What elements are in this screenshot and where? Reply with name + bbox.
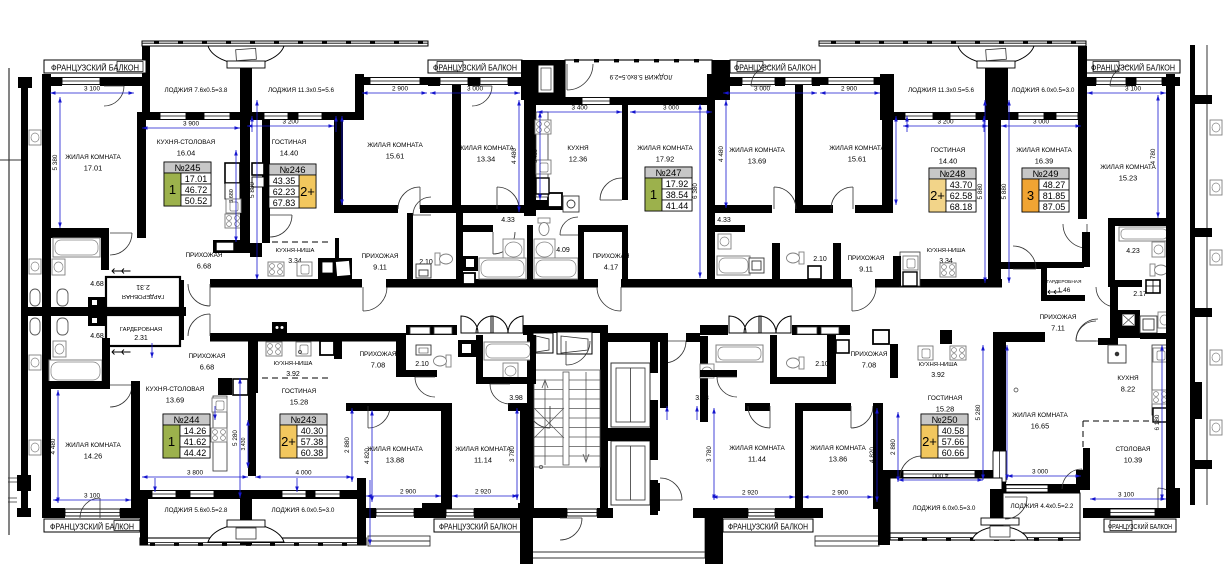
svg-text:ПРИХОЖАЯ: ПРИХОЖАЯ — [1039, 314, 1076, 321]
svg-text:11.44: 11.44 — [748, 455, 766, 464]
svg-text:17.01: 17.01 — [185, 174, 208, 184]
svg-text:ЖИЛАЯ КОМНАТА: ЖИЛАЯ КОМНАТА — [1100, 164, 1156, 171]
svg-text:15.28: 15.28 — [290, 398, 309, 407]
svg-text:2+: 2+ — [930, 188, 945, 203]
svg-text:60.66: 60.66 — [942, 448, 965, 458]
svg-text:14.40: 14.40 — [280, 149, 299, 158]
svg-text:ЖИЛАЯ КОМНАТА: ЖИЛАЯ КОМНАТА — [65, 154, 121, 161]
svg-text:ГОСТИНАЯ: ГОСТИНАЯ — [282, 388, 317, 395]
svg-text:67.83: 67.83 — [273, 198, 296, 208]
svg-text:8.22: 8.22 — [1121, 385, 1135, 394]
svg-text:4.23: 4.23 — [1126, 248, 1140, 255]
svg-text:6 180: 6 180 — [1154, 414, 1161, 430]
svg-text:17.92: 17.92 — [666, 179, 689, 189]
svg-text:3.98: 3.98 — [695, 395, 709, 402]
svg-text:2+: 2+ — [281, 434, 296, 449]
svg-text:КУХНЯ-НИША: КУХНЯ-НИША — [927, 248, 966, 254]
svg-text:62.23: 62.23 — [273, 187, 296, 197]
svg-text:ЛОДЖИЯ 6.0х0.5=3.0: ЛОДЖИЯ 6.0х0.5=3.0 — [1012, 87, 1075, 94]
svg-text:ЖИЛАЯ КОМНАТА: ЖИЛАЯ КОМНАТА — [1016, 147, 1072, 154]
svg-text:ФРАНЦУЗСКИЙ БАЛКОН: ФРАНЦУЗСКИЙ БАЛКОН — [1108, 522, 1172, 531]
svg-text:ЖИЛАЯ КОМНАТА: ЖИЛАЯ КОМНАТА — [367, 142, 423, 149]
svg-text:№250: №250 — [931, 415, 957, 426]
svg-text:ПРИХОЖАЯ: ПРИХОЖАЯ — [850, 351, 887, 358]
svg-text:4.17: 4.17 — [604, 263, 618, 272]
svg-text:3 000: 3 000 — [467, 85, 483, 92]
svg-text:43.70: 43.70 — [950, 180, 973, 190]
svg-text:5 380: 5 380 — [52, 154, 59, 170]
svg-text:4.68: 4.68 — [90, 333, 104, 340]
svg-text:5 280: 5 280 — [975, 404, 982, 420]
svg-text:5 880: 5 880 — [977, 183, 984, 199]
svg-text:9.11: 9.11 — [859, 265, 873, 274]
svg-text:3 900: 3 900 — [183, 120, 199, 127]
svg-text:6 380: 6 380 — [692, 183, 699, 199]
svg-text:5 880: 5 880 — [1001, 183, 1008, 199]
svg-text:1: 1 — [169, 182, 176, 197]
svg-text:48.27: 48.27 — [1043, 180, 1066, 190]
svg-text:3.98: 3.98 — [509, 395, 523, 402]
svg-text:КУХНЯ: КУХНЯ — [567, 145, 589, 152]
svg-text:57.38: 57.38 — [301, 437, 324, 447]
svg-text:10.39: 10.39 — [1124, 456, 1143, 465]
svg-text:3 280: 3 280 — [888, 152, 895, 168]
svg-text:ЛОДЖИЯ 4.4х0.5=2.2: ЛОДЖИЯ 4.4х0.5=2.2 — [1011, 503, 1074, 510]
svg-text:2 880: 2 880 — [890, 439, 897, 455]
svg-text:ЛОДЖИЯ 5.6х0.5=2.8: ЛОДЖИЯ 5.6х0.5=2.8 — [165, 507, 228, 514]
svg-text:№249: №249 — [1032, 169, 1058, 180]
svg-text:3 400: 3 400 — [572, 104, 588, 111]
svg-text:2+: 2+ — [300, 184, 315, 199]
svg-text:7.08: 7.08 — [862, 361, 876, 370]
svg-text:68.18: 68.18 — [950, 202, 973, 212]
svg-text:7.11: 7.11 — [1051, 324, 1065, 333]
svg-text:3 100: 3 100 — [1125, 85, 1141, 92]
svg-text:ГОСТИНАЯ: ГОСТИНАЯ — [272, 139, 307, 146]
svg-text:60.38: 60.38 — [301, 448, 324, 458]
svg-text:ЖИЛАЯ КОМНАТА: ЖИЛАЯ КОМНАТА — [729, 445, 785, 452]
svg-text:57.66: 57.66 — [942, 437, 965, 447]
svg-text:40.58: 40.58 — [942, 426, 965, 436]
svg-text:38.54: 38.54 — [666, 190, 689, 200]
svg-text:ЖИЛАЯ КОМНАТА: ЖИЛАЯ КОМНАТА — [637, 145, 693, 152]
svg-text:№248: №248 — [939, 169, 965, 180]
svg-text:ПРИХОЖАЯ: ПРИХОЖАЯ — [185, 252, 222, 259]
svg-text:3 000: 3 000 — [1032, 468, 1048, 475]
svg-text:ЖИЛАЯ КОМНАТА: ЖИЛАЯ КОМНАТА — [455, 446, 511, 453]
svg-text:6.68: 6.68 — [197, 262, 211, 271]
svg-text:13.34: 13.34 — [477, 155, 496, 164]
svg-text:16.39: 16.39 — [1035, 157, 1054, 166]
svg-text:КУХНЯ-НИША: КУХНЯ-НИША — [274, 361, 313, 367]
svg-text:3.680: 3.680 — [229, 189, 235, 203]
svg-text:7.08: 7.08 — [371, 361, 385, 370]
svg-text:3 000: 3 000 — [1033, 118, 1049, 125]
svg-text:ПРИХОЖАЯ: ПРИХОЖАЯ — [359, 351, 396, 358]
svg-text:ФРАНЦУЗСКИЙ БАЛКОН: ФРАНЦУЗСКИЙ БАЛКОН — [439, 523, 517, 532]
svg-text:ЖИЛАЯ КОМНАТА: ЖИЛАЯ КОМНАТА — [1012, 412, 1068, 419]
svg-text:3 280: 3 280 — [334, 152, 341, 168]
svg-text:17.92: 17.92 — [656, 155, 675, 164]
svg-text:2 920: 2 920 — [742, 489, 758, 496]
svg-text:44.42: 44.42 — [184, 448, 207, 458]
svg-text:ПРИХОЖАЯ: ПРИХОЖАЯ — [592, 253, 629, 260]
svg-text:14.26: 14.26 — [184, 426, 207, 436]
svg-text:2.10: 2.10 — [815, 361, 829, 368]
svg-text:16.65: 16.65 — [1031, 422, 1050, 431]
svg-text:4.33: 4.33 — [717, 217, 731, 224]
svg-text:13.69: 13.69 — [166, 396, 185, 405]
svg-text:15.61: 15.61 — [848, 155, 867, 164]
svg-text:5 280: 5 280 — [999, 404, 1006, 420]
svg-text:4 000: 4 000 — [932, 471, 948, 478]
svg-text:17.01: 17.01 — [84, 164, 103, 173]
svg-text:4 000: 4 000 — [296, 469, 312, 476]
svg-text:2 900: 2 900 — [392, 85, 408, 92]
svg-text:3 780: 3 780 — [706, 446, 713, 462]
svg-text:№244: №244 — [173, 415, 199, 426]
svg-text:ЛОДЖИЯ 7.6х0.5=3.8: ЛОДЖИЯ 7.6х0.5=3.8 — [165, 87, 228, 94]
svg-text:ПРИХОЖАЯ: ПРИХОЖАЯ — [361, 253, 398, 260]
svg-text:ФРАНЦУЗСКИЙ БАЛКОН: ФРАНЦУЗСКИЙ БАЛКОН — [728, 523, 808, 532]
svg-text:3 200: 3 200 — [283, 118, 299, 125]
svg-text:14.40: 14.40 — [939, 157, 958, 166]
svg-text:15.23: 15.23 — [1119, 174, 1138, 183]
svg-text:2 900: 2 900 — [400, 488, 416, 495]
svg-text:4 480: 4 480 — [50, 438, 57, 454]
svg-text:КУХНЯ-СТОЛОВАЯ: КУХНЯ-СТОЛОВАЯ — [157, 139, 216, 146]
svg-text:3.92: 3.92 — [931, 372, 945, 379]
svg-text:ГОСТИНАЯ: ГОСТИНАЯ — [931, 147, 966, 154]
svg-text:11.14: 11.14 — [474, 456, 492, 465]
svg-text:ГАРДЕРОБНАЯ: ГАРДЕРОБНАЯ — [120, 327, 162, 333]
svg-text:2.10: 2.10 — [415, 361, 429, 368]
svg-text:ЖИЛАЯ КОМНАТА: ЖИЛАЯ КОМНАТА — [729, 147, 785, 154]
svg-text:3 100: 3 100 — [1118, 491, 1134, 498]
svg-text:9.11: 9.11 — [373, 263, 387, 272]
svg-text:3 100: 3 100 — [84, 492, 100, 499]
svg-text:41.44: 41.44 — [666, 201, 689, 211]
svg-text:1: 1 — [650, 187, 657, 202]
svg-text:41.62: 41.62 — [184, 437, 207, 447]
svg-text:4.09: 4.09 — [556, 247, 570, 254]
svg-text:№243: №243 — [290, 415, 316, 426]
svg-text:5 880: 5 880 — [249, 182, 256, 198]
svg-text:ЛОДЖИЯ 5.8х0.5=2.9: ЛОДЖИЯ 5.8х0.5=2.9 — [609, 73, 672, 80]
svg-text:ЛОДЖИЯ 11.3х0.5=5.6: ЛОДЖИЯ 11.3х0.5=5.6 — [908, 87, 974, 94]
svg-text:46.72: 46.72 — [185, 185, 208, 195]
svg-text:3 430: 3 430 — [533, 149, 539, 163]
svg-text:16.04: 16.04 — [177, 149, 196, 158]
svg-text:2 900: 2 900 — [832, 489, 848, 496]
svg-text:62.58: 62.58 — [950, 191, 973, 201]
svg-text:3 000: 3 000 — [663, 104, 679, 111]
svg-text:3 000: 3 000 — [754, 85, 770, 92]
svg-text:ЖИЛАЯ КОМНАТА: ЖИЛАЯ КОМНАТА — [65, 442, 121, 449]
svg-text:2.31: 2.31 — [134, 335, 148, 342]
svg-text:50.52: 50.52 — [185, 196, 208, 206]
svg-text:ЖИЛАЯ КОМНАТА: ЖИЛАЯ КОМНАТА — [458, 145, 514, 152]
svg-text:1.46: 1.46 — [1058, 287, 1071, 294]
svg-text:СТОЛОВАЯ: СТОЛОВАЯ — [1115, 446, 1150, 453]
svg-text:3 100: 3 100 — [84, 85, 100, 92]
svg-text:43.35: 43.35 — [273, 176, 296, 186]
svg-text:12.36: 12.36 — [569, 155, 588, 164]
svg-text:3 200: 3 200 — [938, 118, 954, 125]
svg-text:15.28: 15.28 — [936, 405, 955, 414]
svg-text:2+: 2+ — [922, 434, 937, 449]
svg-text:4.33: 4.33 — [501, 217, 515, 224]
svg-text:2 920: 2 920 — [475, 488, 491, 495]
svg-text:2 900: 2 900 — [841, 85, 857, 92]
svg-text:№247: №247 — [655, 168, 681, 179]
svg-text:КУХНЯ-СТОЛОВАЯ: КУХНЯ-СТОЛОВАЯ — [146, 386, 205, 393]
svg-text:13.69: 13.69 — [748, 157, 767, 166]
svg-text:ГАРДЕРОБНАЯ: ГАРДЕРОБНАЯ — [1047, 279, 1082, 285]
svg-text:ЛОДЖИЯ 6.0х0.5=3.0: ЛОДЖИЯ 6.0х0.5=3.0 — [913, 505, 976, 512]
svg-text:2.10: 2.10 — [813, 256, 827, 263]
svg-text:13.88: 13.88 — [386, 456, 405, 465]
svg-text:4 780: 4 780 — [1150, 148, 1157, 164]
svg-text:13.86: 13.86 — [829, 455, 848, 464]
svg-text:6.68: 6.68 — [200, 363, 214, 372]
svg-text:40.30: 40.30 — [301, 426, 324, 436]
svg-text:КУХНЯ-НИША: КУХНЯ-НИША — [276, 248, 315, 254]
svg-text:5 280: 5 280 — [232, 430, 239, 446]
svg-text:ЖИЛАЯ КОМНАТА: ЖИЛАЯ КОМНАТА — [810, 445, 866, 452]
svg-text:14.26: 14.26 — [84, 452, 103, 461]
svg-text:№245: №245 — [174, 163, 200, 174]
svg-text:3.430: 3.430 — [241, 437, 247, 450]
svg-text:ЖИЛАЯ КОМНАТА: ЖИЛАЯ КОМНАТА — [367, 446, 423, 453]
svg-text:3.92: 3.92 — [286, 371, 300, 378]
svg-text:ЛОДЖИЯ 11.3х0.5=5.6: ЛОДЖИЯ 11.3х0.5=5.6 — [268, 87, 334, 94]
svg-text:КУХНЯ-НИША: КУХНЯ-НИША — [919, 362, 958, 368]
svg-text:4.68: 4.68 — [90, 281, 104, 288]
svg-text:87.05: 87.05 — [1043, 202, 1066, 212]
svg-text:ГОСТИНАЯ: ГОСТИНАЯ — [928, 395, 963, 402]
svg-text:3: 3 — [1027, 188, 1034, 203]
svg-text:4 820: 4 820 — [869, 447, 876, 463]
svg-text:ПРИХОЖАЯ: ПРИХОЖАЯ — [188, 353, 225, 360]
svg-text:ПРИХОЖАЯ: ПРИХОЖАЯ — [847, 255, 884, 262]
svg-text:4 480: 4 480 — [718, 146, 725, 162]
svg-text:3 800: 3 800 — [187, 469, 203, 476]
svg-text:1: 1 — [168, 434, 175, 449]
svg-text:81.85: 81.85 — [1043, 191, 1066, 201]
svg-text:№246: №246 — [279, 165, 305, 176]
svg-text:15.61: 15.61 — [386, 152, 405, 161]
svg-text:КУХНЯ: КУХНЯ — [1117, 375, 1139, 382]
svg-text:2.31: 2.31 — [136, 283, 150, 290]
svg-text:2 880: 2 880 — [344, 437, 351, 453]
svg-text:ЛОДЖИЯ 6.0х0.5=3.0: ЛОДЖИЯ 6.0х0.5=3.0 — [272, 507, 335, 514]
svg-text:ГАРДЕРОБНАЯ: ГАРДЕРОБНАЯ — [122, 293, 164, 299]
svg-text:2.17: 2.17 — [1133, 291, 1147, 298]
svg-text:ЖИЛАЯ КОМНАТА: ЖИЛАЯ КОМНАТА — [829, 145, 885, 152]
